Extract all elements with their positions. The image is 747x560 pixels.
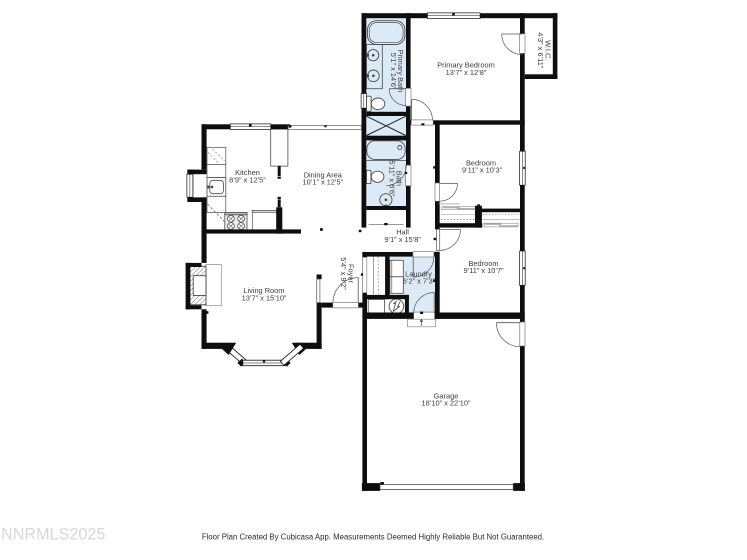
svg-text:8’9” x 12’5”: 8’9” x 12’5”	[229, 176, 266, 185]
svg-text:5’11” x 8’6”: 5’11” x 8’6”	[388, 160, 397, 197]
svg-text:13’7” x 15’10”: 13’7” x 15’10”	[242, 294, 287, 303]
svg-text:5’1” x 14’6”: 5’1” x 14’6”	[389, 53, 398, 90]
svg-text:9’11” x 10’3”: 9’11” x 10’3”	[462, 166, 503, 175]
svg-text:18’10” x 22’10”: 18’10” x 22’10”	[422, 399, 471, 408]
svg-text:9’1” x 15’8”: 9’1” x 15’8”	[384, 235, 421, 244]
svg-text:6’2” x 7’3”: 6’2” x 7’3”	[403, 277, 436, 286]
svg-text:9’11” x 10’7”: 9’11” x 10’7”	[463, 266, 504, 275]
svg-text:Floor Plan Created By Cubicasa: Floor Plan Created By Cubicasa App. Meas…	[202, 532, 544, 541]
svg-text:10’1” x 12’5”: 10’1” x 12’5”	[302, 178, 343, 187]
svg-text:4’3” x 6’11”: 4’3” x 6’11”	[536, 32, 545, 69]
svg-text:NNRMLS2025: NNRMLS2025	[1, 526, 105, 544]
svg-text:5’4” x 9’2”: 5’4” x 9’2”	[339, 257, 348, 290]
svg-text:13’7” x 12’8”: 13’7” x 12’8”	[446, 68, 487, 77]
